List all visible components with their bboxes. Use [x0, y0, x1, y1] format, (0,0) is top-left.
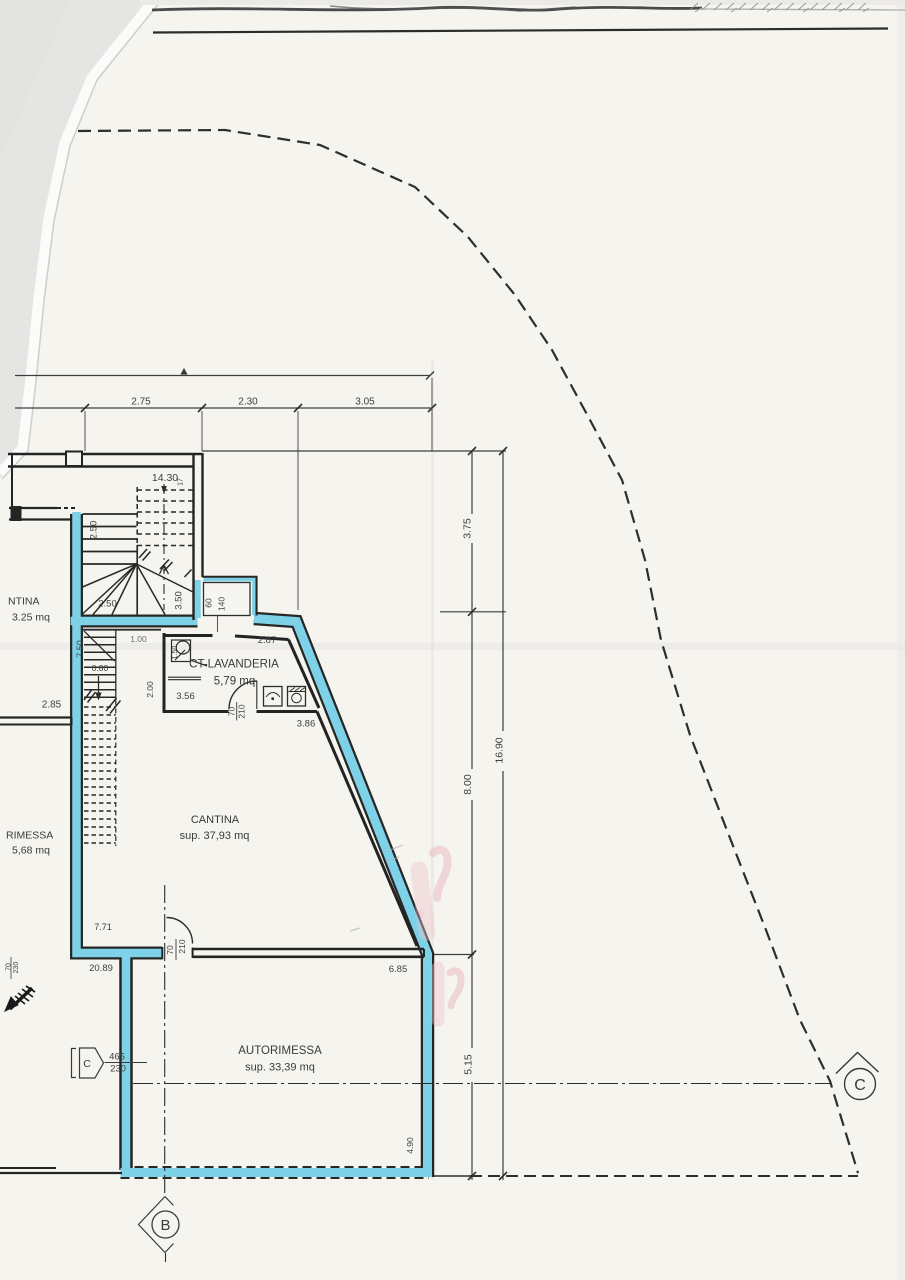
svg-text:2.50: 2.50 [98, 599, 117, 610]
svg-text:2.30: 2.30 [238, 397, 258, 408]
svg-text:6.85: 6.85 [389, 964, 408, 975]
svg-text:CT-LAVANDERIA: CT-LAVANDERIA [189, 659, 279, 671]
svg-text:20.89: 20.89 [89, 963, 113, 974]
svg-text:CANTINA: CANTINA [191, 814, 240, 826]
svg-text:3.05: 3.05 [355, 397, 375, 408]
svg-text:5,79 mq: 5,79 mq [214, 676, 256, 688]
svg-text:sup. 33,39 mq: sup. 33,39 mq [245, 1062, 315, 1074]
svg-text:AUTORIMESSA: AUTORIMESSA [238, 1045, 322, 1057]
svg-text:210: 210 [177, 939, 187, 953]
svg-text:sup. 37,93 mq: sup. 37,93 mq [180, 830, 250, 842]
svg-text:4.90: 4.90 [405, 1137, 415, 1154]
svg-text:5.15: 5.15 [463, 1054, 475, 1075]
svg-text:1.50: 1.50 [172, 646, 179, 660]
svg-text:3.75: 3.75 [462, 518, 474, 539]
svg-text:70: 70 [227, 707, 237, 717]
svg-text:B: B [160, 1217, 170, 1234]
svg-text:NTINA: NTINA [8, 596, 40, 608]
svg-text:14.30: 14.30 [152, 472, 178, 484]
svg-text:2.85: 2.85 [42, 700, 62, 711]
svg-text:70: 70 [165, 945, 175, 955]
svg-text:7.71: 7.71 [94, 922, 112, 932]
svg-text:1.00: 1.00 [130, 634, 147, 644]
svg-text:8.00: 8.00 [462, 774, 474, 795]
svg-text:465: 465 [109, 1052, 125, 1063]
svg-text:60: 60 [204, 598, 214, 608]
svg-text:16.90: 16.90 [494, 737, 506, 763]
svg-text:C: C [854, 1077, 866, 1094]
svg-text:2.75: 2.75 [131, 397, 151, 408]
svg-text:2.00: 2.00 [145, 681, 155, 698]
svg-text:C: C [83, 1058, 91, 1070]
svg-text:3.50: 3.50 [174, 591, 185, 610]
svg-text:7.50: 7.50 [75, 640, 85, 658]
svg-text:140: 140 [217, 597, 227, 611]
svg-text:230: 230 [13, 962, 20, 974]
svg-text:2.87: 2.87 [258, 635, 277, 646]
svg-text:2.50: 2.50 [89, 521, 100, 540]
svg-text:17: 17 [178, 478, 185, 486]
svg-text:3.56: 3.56 [176, 691, 195, 702]
svg-text:3.25 mq: 3.25 mq [12, 612, 50, 624]
svg-text:3.86: 3.86 [297, 719, 316, 730]
svg-text:210: 210 [237, 704, 247, 718]
svg-text:5,68 mq: 5,68 mq [12, 845, 50, 857]
svg-text:RIMESSA: RIMESSA [6, 830, 53, 842]
svg-text:230: 230 [110, 1064, 126, 1075]
svg-text:0.80: 0.80 [92, 663, 109, 673]
svg-text:70: 70 [6, 963, 13, 971]
